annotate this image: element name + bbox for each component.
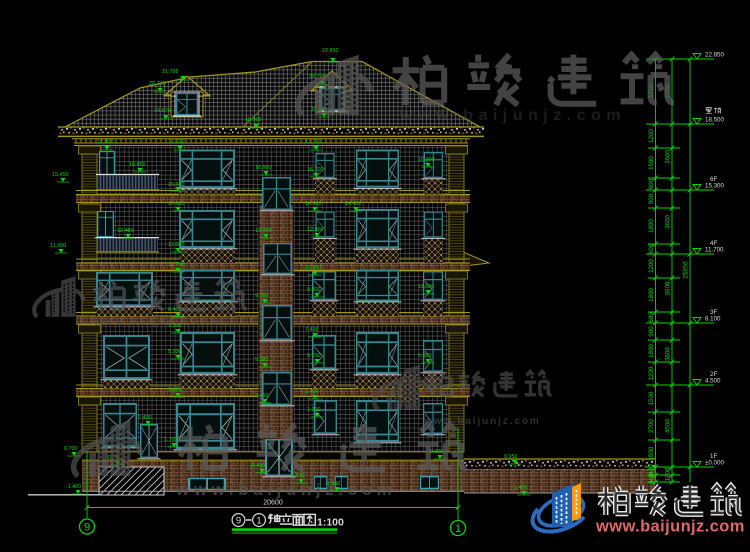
svg-text:www.baijunjz.com: www.baijunjz.com bbox=[175, 480, 396, 499]
svg-text:5.580: 5.580 bbox=[255, 357, 269, 363]
svg-text:www.baijunjz.com: www.baijunjz.com bbox=[423, 416, 541, 427]
svg-text:20600: 20600 bbox=[263, 500, 283, 507]
svg-text:www.baijunjz.com: www.baijunjz.com bbox=[595, 518, 745, 536]
svg-text:-1.400: -1.400 bbox=[66, 484, 81, 490]
svg-text:17.900: 17.900 bbox=[97, 139, 114, 145]
svg-text:14.400: 14.400 bbox=[345, 201, 362, 207]
svg-text:2.400: 2.400 bbox=[138, 415, 152, 421]
svg-text:16.900: 16.900 bbox=[255, 165, 272, 171]
svg-text:900: 900 bbox=[648, 193, 655, 204]
svg-text:2700: 2700 bbox=[648, 419, 655, 433]
svg-text:14.600: 14.600 bbox=[168, 201, 185, 207]
svg-text:21.795: 21.795 bbox=[162, 69, 179, 75]
svg-text:1500: 1500 bbox=[648, 446, 655, 460]
svg-text:600: 600 bbox=[648, 312, 655, 323]
svg-text:www.baijunjz.com: www.baijunjz.com bbox=[399, 107, 626, 124]
svg-text:17.700: 17.700 bbox=[168, 139, 185, 145]
svg-text:600: 600 bbox=[648, 243, 655, 254]
svg-text:900: 900 bbox=[648, 178, 655, 189]
svg-text:3.600: 3.600 bbox=[168, 387, 182, 393]
svg-text:1500: 1500 bbox=[648, 156, 655, 170]
svg-text:11.900: 11.900 bbox=[50, 243, 66, 249]
svg-text:13.000: 13.000 bbox=[255, 228, 272, 234]
svg-text:15.450: 15.450 bbox=[52, 172, 69, 178]
svg-text:1.500: 1.500 bbox=[291, 473, 305, 479]
svg-text:www.baijunjz.com: www.baijunjz.com bbox=[93, 316, 223, 328]
svg-text:1800: 1800 bbox=[665, 467, 672, 481]
svg-text:7.400: 7.400 bbox=[305, 327, 319, 333]
svg-text:3.450: 3.450 bbox=[255, 393, 269, 399]
svg-text:14.400: 14.400 bbox=[305, 201, 322, 207]
svg-text:1200: 1200 bbox=[648, 129, 655, 143]
svg-text:1800: 1800 bbox=[648, 344, 655, 358]
svg-text:600: 600 bbox=[648, 473, 655, 484]
svg-text:10.700: 10.700 bbox=[168, 262, 185, 268]
svg-text:18.900: 18.900 bbox=[245, 117, 262, 123]
svg-text:3600: 3600 bbox=[665, 150, 672, 164]
svg-text:1200: 1200 bbox=[648, 259, 655, 273]
svg-text:11.600: 11.600 bbox=[418, 284, 434, 290]
svg-text:4500: 4500 bbox=[665, 419, 672, 433]
svg-text:-1.400: -1.400 bbox=[512, 485, 527, 491]
svg-text:12.480: 12.480 bbox=[117, 228, 134, 234]
svg-text:3600: 3600 bbox=[665, 215, 672, 229]
svg-text:1:100: 1:100 bbox=[317, 516, 344, 528]
svg-text:1800: 1800 bbox=[648, 219, 655, 233]
svg-text:18.500: 18.500 bbox=[705, 117, 724, 124]
svg-text:16.300: 16.300 bbox=[418, 157, 435, 163]
svg-text:3600: 3600 bbox=[665, 347, 672, 361]
svg-text:12.900: 12.900 bbox=[307, 227, 324, 233]
svg-text:12.000: 12.000 bbox=[168, 242, 185, 248]
svg-text:17.200: 17.200 bbox=[305, 139, 322, 145]
svg-text:4.500: 4.500 bbox=[705, 378, 721, 385]
svg-text:900: 900 bbox=[648, 326, 655, 337]
svg-text:-0.450: -0.450 bbox=[250, 463, 265, 469]
svg-text:3600: 3600 bbox=[665, 281, 672, 295]
svg-text:16.450: 16.450 bbox=[129, 162, 146, 168]
svg-text:10.900: 10.900 bbox=[305, 265, 322, 271]
svg-text:9.300: 9.300 bbox=[307, 287, 321, 293]
svg-text:9: 9 bbox=[84, 522, 90, 534]
svg-text:22.850: 22.850 bbox=[322, 48, 339, 54]
svg-text:15.300: 15.300 bbox=[705, 183, 724, 190]
svg-text:1200: 1200 bbox=[648, 366, 655, 380]
svg-text:1500: 1500 bbox=[648, 391, 655, 405]
svg-text:±0.000: ±0.000 bbox=[705, 460, 724, 467]
svg-text:9: 9 bbox=[236, 515, 241, 526]
svg-text:1: 1 bbox=[256, 515, 261, 526]
svg-text:1800: 1800 bbox=[648, 288, 655, 302]
svg-text:20.775: 20.775 bbox=[149, 81, 166, 87]
svg-text:8.100: 8.100 bbox=[705, 316, 721, 323]
svg-text:1: 1 bbox=[455, 523, 461, 535]
svg-text:25850: 25850 bbox=[683, 261, 690, 279]
svg-text:22.850: 22.850 bbox=[705, 52, 724, 59]
svg-text:5.100: 5.100 bbox=[168, 349, 182, 355]
svg-text:3.400: 3.400 bbox=[305, 389, 319, 395]
svg-text:1.795: 1.795 bbox=[164, 437, 178, 443]
svg-text:11.700: 11.700 bbox=[705, 247, 724, 254]
svg-text:1.300: 1.300 bbox=[307, 407, 321, 413]
svg-text:9.000: 9.000 bbox=[255, 293, 269, 299]
svg-text:0.700: 0.700 bbox=[64, 446, 78, 452]
svg-text:19.575: 19.575 bbox=[154, 108, 171, 114]
svg-text:0.950: 0.950 bbox=[504, 454, 518, 460]
svg-text:16.700: 16.700 bbox=[307, 167, 324, 173]
svg-text:5.800: 5.800 bbox=[418, 353, 432, 359]
svg-text:5.700: 5.700 bbox=[307, 353, 321, 359]
